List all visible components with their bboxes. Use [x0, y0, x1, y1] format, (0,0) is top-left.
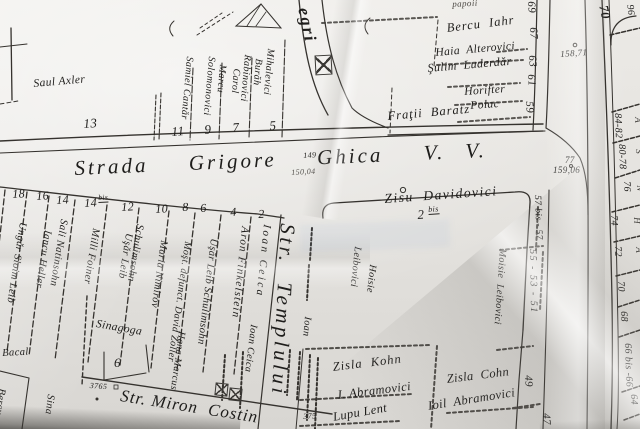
plot-number-18: 18	[12, 187, 25, 200]
plot-number-9: 9	[204, 123, 212, 137]
area-3765: 3765	[89, 382, 107, 392]
crossed-plot-icon	[228, 387, 242, 401]
owner-initial-s: S	[634, 149, 640, 154]
plot-number-59: 59	[523, 101, 535, 114]
plot-number-84-82: 84-82	[612, 113, 623, 139]
plot-number-14bis: 14	[84, 196, 97, 209]
plot-number-70: 70	[615, 281, 626, 292]
plot-number-57bis-57: 57 bis - 57	[531, 195, 542, 240]
plot-number-2bis-suffix: bis	[428, 205, 439, 215]
plot-number-76: 76	[621, 181, 632, 192]
plot-number-12: 12	[121, 200, 134, 213]
plot-number-13: 13	[83, 116, 98, 130]
plot-number-49: 49	[522, 375, 534, 387]
owner-label-ioan-fragment: Ioan	[300, 316, 312, 337]
owner-label-bacal: Bacal	[2, 348, 29, 360]
plot-number-4: 4	[230, 206, 237, 219]
plot-number-47: 47	[540, 413, 552, 425]
plot-number-67: 67	[527, 27, 539, 40]
owner-initial-a2: A	[634, 247, 640, 253]
road-number-label: 70	[597, 4, 613, 20]
plot-number-61: 61	[525, 74, 537, 87]
plot-number-5: 5	[269, 119, 277, 133]
synagogue-label-cut: Sina	[42, 394, 55, 415]
plot-number-63: 63	[526, 55, 538, 68]
plot-number-66bis-66: 66 bis -66	[622, 343, 634, 387]
plot-number-2bis: 2	[417, 208, 425, 222]
plot-number-6-synagogue: 6	[114, 356, 121, 370]
plot-number-96: 96	[624, 4, 636, 16]
owner-initial-a1: A	[633, 117, 640, 123]
plot-number-14bis-suffix: bis	[98, 193, 108, 202]
elevation-158-71: 158,71	[560, 48, 588, 59]
plot-number-72: 72	[612, 246, 623, 257]
owner-label-polac: Polac	[470, 99, 500, 113]
plot-number-7: 7	[232, 121, 240, 135]
plot-number-11: 11	[171, 124, 185, 138]
plot-number-64: 64	[628, 394, 639, 405]
number-375: 375	[303, 412, 317, 421]
crossed-plot-icon	[314, 55, 332, 76]
cut-name-fragment: papoii	[452, 0, 478, 9]
plot-number-74: 74	[608, 215, 619, 226]
elevation-159-06: 159,06	[553, 166, 580, 175]
plot-number-8: 8	[182, 201, 189, 214]
elevation-149: 149	[303, 151, 317, 160]
plot-number-6: 6	[200, 202, 207, 215]
plot-number-55-53-51: 55 - 53 - 51	[527, 249, 539, 314]
point-77: 77	[565, 156, 575, 165]
elevation-150-04: 150,04	[291, 168, 316, 178]
owner-initial-h: H	[632, 217, 640, 224]
owner-label-hoisie: Hoisie	[364, 264, 377, 293]
crossed-plot-icon	[214, 382, 228, 396]
plot-number-14: 14	[56, 193, 69, 206]
plot-number-2: 2	[258, 208, 265, 221]
plot-number-68: 68	[618, 311, 629, 322]
cadastral-map-photo: Strada Grigore Ghica V. V. Str. Templulu…	[0, 0, 640, 429]
plot-number-10: 10	[155, 202, 168, 215]
plot-number-69: 69	[525, 1, 537, 14]
plot-number-80-78: 80-78	[616, 144, 627, 170]
owner-label-marcu: Marcu	[214, 64, 227, 93]
plot-number-16: 16	[36, 189, 49, 202]
owner-initial-n: N	[635, 185, 640, 192]
